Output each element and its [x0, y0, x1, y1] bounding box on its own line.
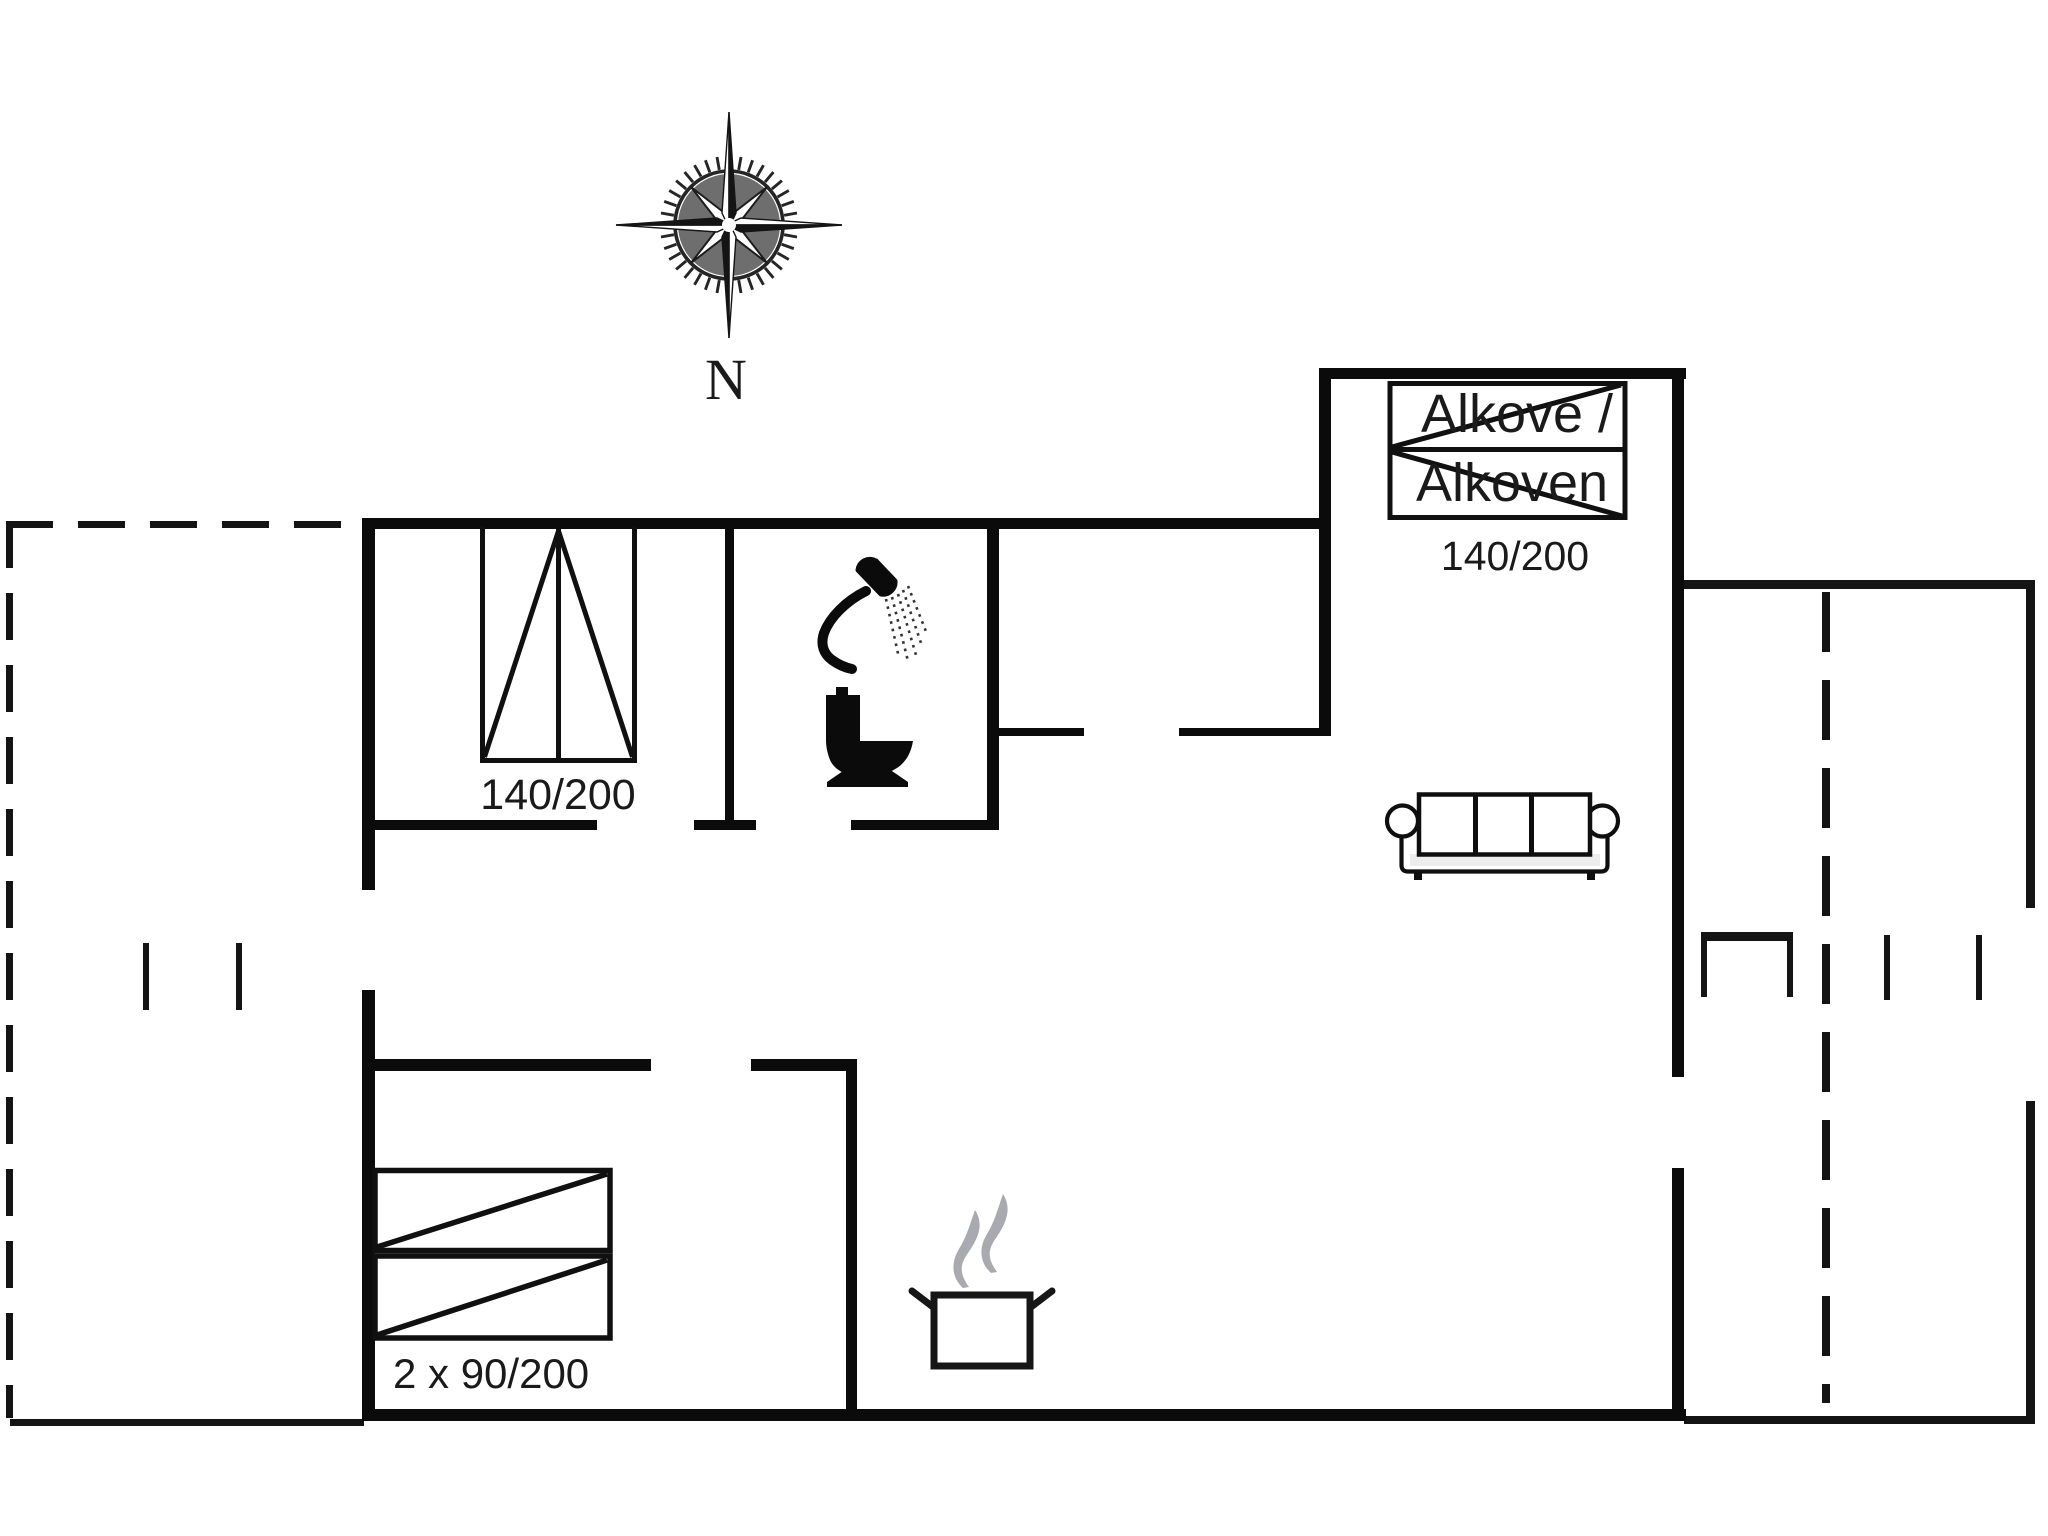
svg-text:2 x 90/200: 2 x 90/200: [393, 1350, 589, 1397]
svg-text:140/200: 140/200: [1441, 533, 1589, 579]
svg-text:140/200: 140/200: [480, 771, 635, 819]
svg-text:Alkoven: Alkoven: [1416, 453, 1608, 513]
svg-text:Alkove /: Alkove /: [1421, 384, 1613, 444]
svg-text:N: N: [705, 347, 747, 412]
